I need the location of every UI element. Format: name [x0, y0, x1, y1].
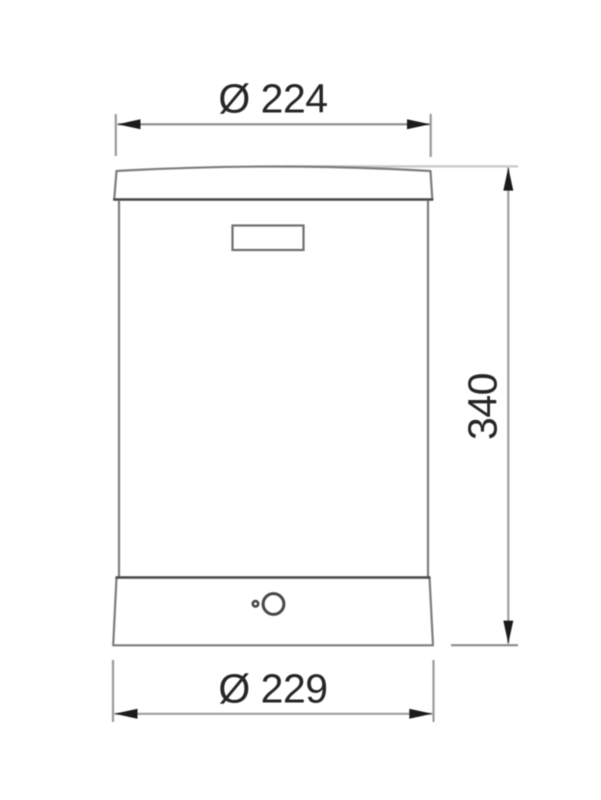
- svg-text:340: 340: [460, 373, 506, 440]
- svg-text:Ø 229: Ø 229: [218, 666, 327, 712]
- svg-text:Ø 224: Ø 224: [218, 76, 327, 122]
